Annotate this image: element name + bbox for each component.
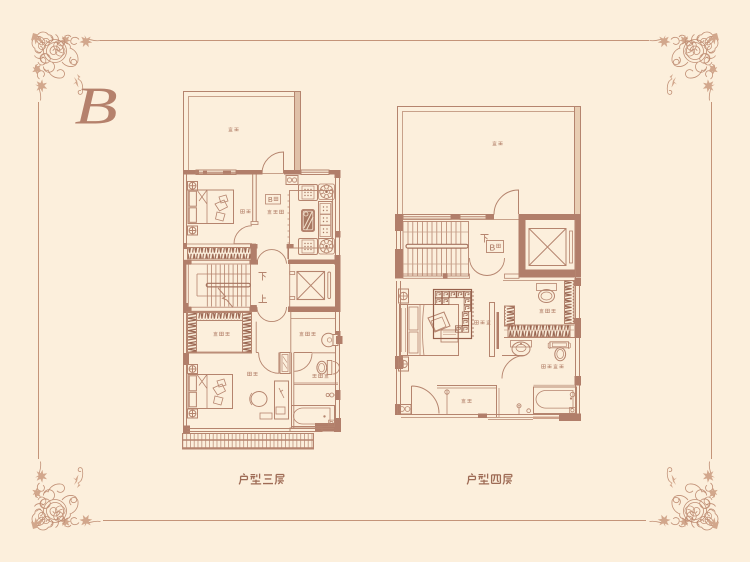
svg-text:B: B: [268, 197, 273, 204]
svg-text:B: B: [490, 243, 496, 253]
svg-text:B: B: [75, 76, 118, 135]
